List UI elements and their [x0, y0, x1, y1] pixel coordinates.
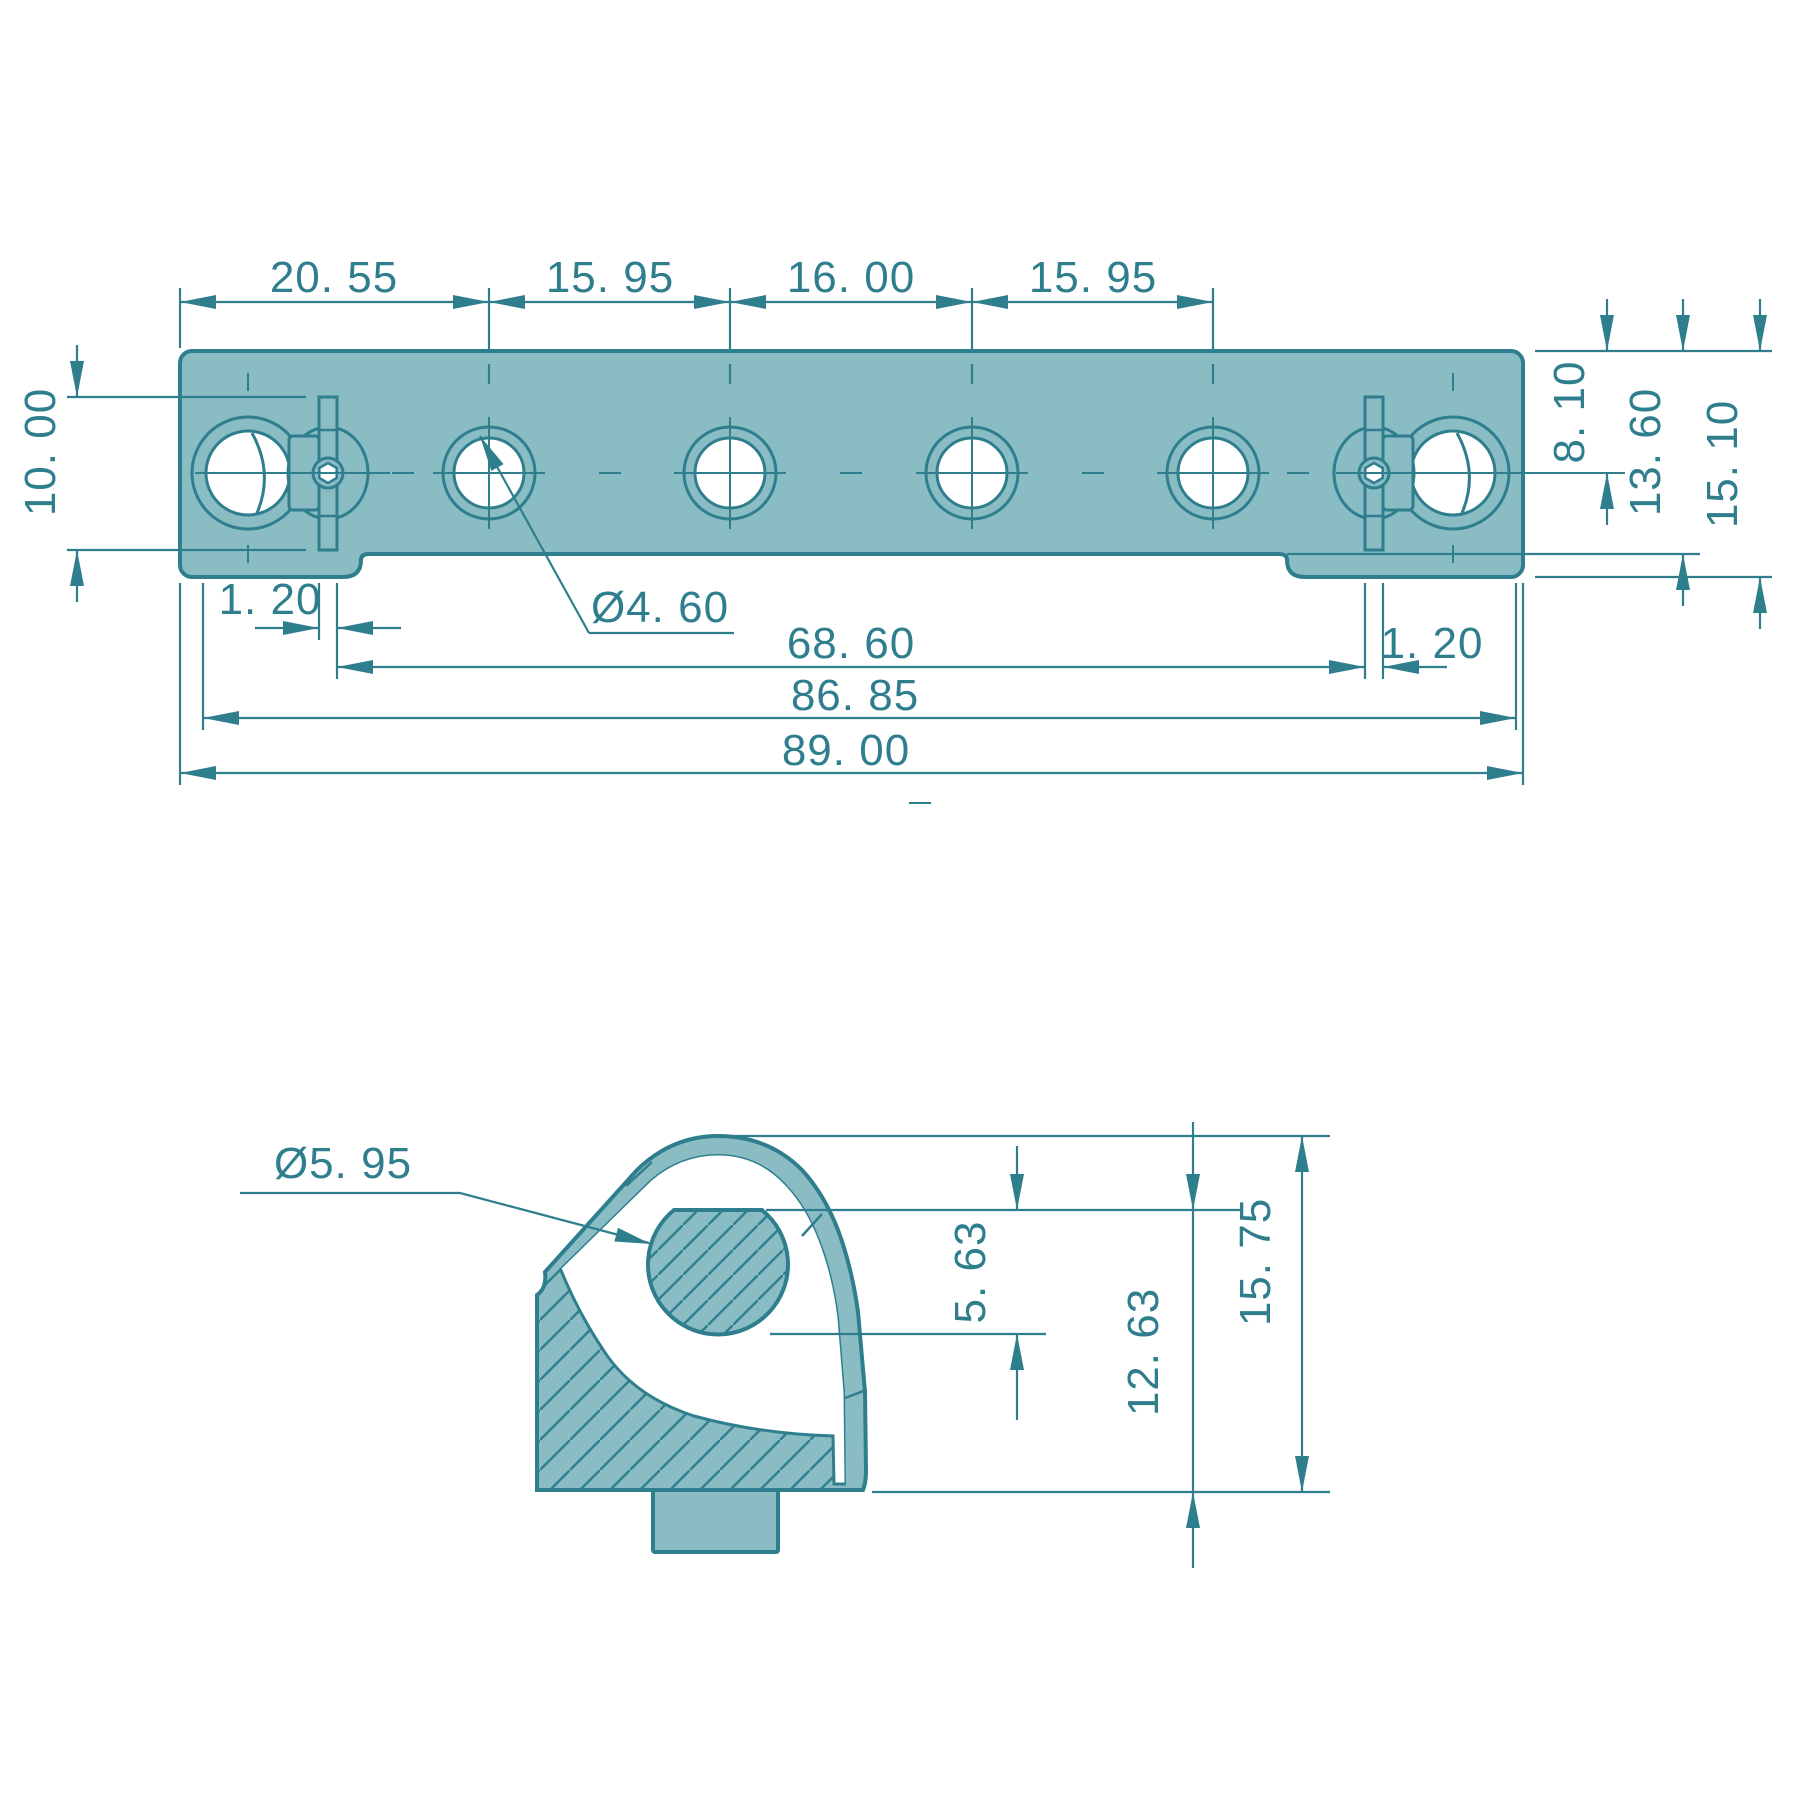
- dim-label-spacing-1: 20. 55: [270, 253, 398, 302]
- top-view: 20. 55 15. 95 16. 00 15. 95 10. 00 8. 10…: [16, 253, 1772, 803]
- dim-label-spacing-3: 16. 00: [787, 253, 915, 302]
- dim-label-pin-diameter: Ø5. 95: [274, 1139, 412, 1188]
- dim-label-spacing-2: 15. 95: [546, 253, 674, 302]
- dim-label-hole-diameter: Ø4. 60: [591, 583, 729, 632]
- dim-label-section-total-height: 15. 75: [1231, 1198, 1280, 1326]
- dim-label-spacing-4: 15. 95: [1029, 253, 1157, 302]
- dim-label-pin-height: 5. 63: [946, 1221, 995, 1324]
- dim-label-tab-offset-right: 1. 20: [1381, 619, 1484, 668]
- section-view: 5. 63 12. 63 15. 75 Ø5. 95: [240, 1120, 1330, 1568]
- dim-label-section-mid-height: 12. 63: [1119, 1288, 1168, 1416]
- cad-drawing: 20. 55 15. 95 16. 00 15. 95 10. 00 8. 10…: [0, 0, 1800, 1800]
- dim-label-length-mid: 86. 85: [791, 671, 919, 720]
- section-bottom-tab: [653, 1490, 778, 1552]
- dim-label-height-total: 15. 10: [1698, 400, 1747, 528]
- dim-label-slot-height: 10. 00: [16, 388, 65, 516]
- dim-label-length-inner: 68. 60: [787, 619, 915, 668]
- dim-label-height-to-center: 8. 10: [1545, 361, 1594, 464]
- technical-drawing-page: { "drawing": { "type": "2-view mechanica…: [0, 0, 1800, 1800]
- dim-label-length-overall: 89. 00: [782, 726, 910, 775]
- dim-label-height-to-step: 13. 60: [1621, 388, 1670, 516]
- dim-label-tab-offset-left: 1. 20: [219, 575, 322, 624]
- bar-body: [180, 351, 1523, 577]
